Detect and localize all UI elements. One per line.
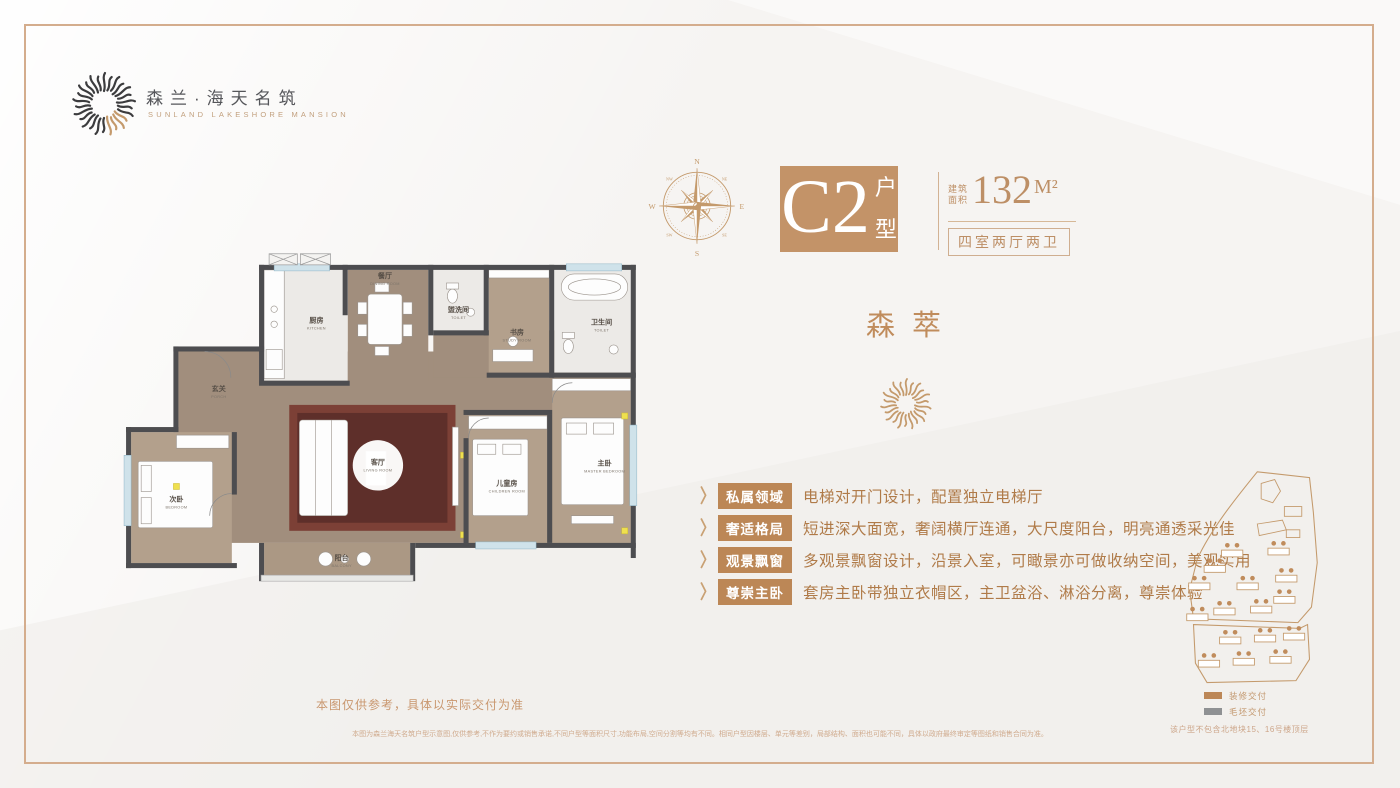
compass-w-label: W [649,202,657,211]
svg-text:书房: 书房 [510,327,524,336]
area-row: 建筑 面积 132 M² [948,170,1058,210]
area-prefix-line1: 建筑 [948,184,968,195]
svg-text:餐厅: 餐厅 [377,271,392,280]
feature-desc: 套房主卧带独立衣帽区，主卫盆浴、淋浴分离，尊崇体验 [803,581,1203,603]
brand-swirl-icon [70,70,138,138]
chevron-right-icon: 〉 [700,546,715,572]
site-buildings [1187,541,1305,667]
svg-text:STUDY ROOM: STUDY ROOM [503,338,532,342]
decorated-delivery-swatch [1204,692,1222,699]
svg-text:儿童房: 儿童房 [495,478,517,487]
unit-code: C2 [781,169,870,245]
area-underline [948,221,1076,222]
svg-text:TOILET: TOILET [451,316,466,320]
unit-type-char-1: 户 [875,177,897,199]
svg-text:DINING ROOM: DINING ROOM [370,282,400,286]
unit-type-label: 户 型 [875,177,897,241]
feature-tag: 观景飘窗 [718,547,792,573]
compass-nw-label: NW [666,177,673,182]
svg-text:PORCH: PORCH [211,395,226,399]
compass-e-label: E [740,202,745,211]
title-divider [938,172,939,250]
chevron-right-icon: 〉 [700,514,715,540]
svg-text:LIVING ROOM: LIVING ROOM [364,468,393,472]
svg-text:KITCHEN: KITCHEN [307,326,326,330]
svg-text:主卧: 主卧 [598,458,612,467]
unit-code-box: C2 户 型 [780,166,898,252]
disclaimer-text: 本图为森兰海天名筑户型示意图,仅供参考,不作为要约或销售承诺,不同户型等面积尺寸… [352,729,1048,739]
svg-text:MASTER BEDROOM: MASTER BEDROOM [584,469,625,473]
legend-item: 毛坯交付 [1204,706,1267,717]
feature-desc: 电梯对开门设计，配置独立电梯厅 [803,485,1043,507]
area-value: 132 [972,170,1032,210]
compass-sw-label: SW [666,233,672,238]
svg-text:BALCONY: BALCONY [331,564,351,568]
siteplan-legend: 装修交付 毛坯交付 [1204,690,1267,722]
feature-tag: 私属领域 [718,483,792,509]
legend-item: 装修交付 [1204,690,1267,701]
feature-tag: 奢适格局 [718,515,792,541]
compass-rose-icon: N E S W NE NW SE SW [646,155,748,257]
project-name: 森萃 [866,302,958,344]
poster-page: { "brand": { "name_cn": "森兰·海天名筑", "name… [0,0,1400,788]
svg-text:BEDROOM: BEDROOM [166,506,188,510]
feature-tag: 尊崇主卧 [718,579,792,605]
svg-text:TOILET: TOILET [594,328,609,332]
site-facilities [1257,480,1301,538]
plan-note: 本图仅供参考，具体以实际交付为准 [316,696,524,713]
legend-label: 毛坯交付 [1229,706,1267,718]
siteplan-note: 该户型不包含北地块15、16号楼顶层 [1170,724,1309,735]
unit-spec-box: 四室两厅两卫 [948,228,1070,256]
svg-text:CHILDREN ROOM: CHILDREN ROOM [489,490,525,494]
unit-type-char-2: 型 [875,219,897,241]
elevator-shafts [269,254,330,265]
svg-text:卫生间: 卫生间 [591,317,612,326]
compass-s-label: S [695,249,699,257]
area-prefix-line2: 面积 [948,195,968,206]
svg-text:客厅: 客厅 [370,457,385,466]
area-unit: M² [1034,176,1058,199]
rough-delivery-swatch [1204,708,1222,715]
area-prefix: 建筑 面积 [948,184,968,206]
svg-text:盥洗间: 盥洗间 [448,305,469,314]
chevron-right-icon: 〉 [700,482,715,508]
compass-se-label: SE [722,233,727,238]
floor-plan: 玄关PORCH 厨房KITCHEN 餐厅DINING ROOM 盥洗间TOILE… [118,253,662,587]
brand-name: 森兰·海天名筑 [146,84,303,109]
site-plan [1158,466,1400,698]
svg-text:玄关: 玄关 [212,384,227,393]
compass-ne-label: NE [722,177,728,182]
compass-n-label: N [694,157,700,166]
chevron-right-icon: 〉 [700,578,715,604]
svg-text:次卧: 次卧 [169,495,183,504]
project-swirl-icon [878,376,934,432]
brand-name-en: SUNLAND LAKESHORE MANSION [148,110,349,119]
svg-text:厨房: 厨房 [309,315,323,324]
legend-label: 装修交付 [1229,690,1267,702]
svg-text:阳台: 阳台 [335,553,349,562]
